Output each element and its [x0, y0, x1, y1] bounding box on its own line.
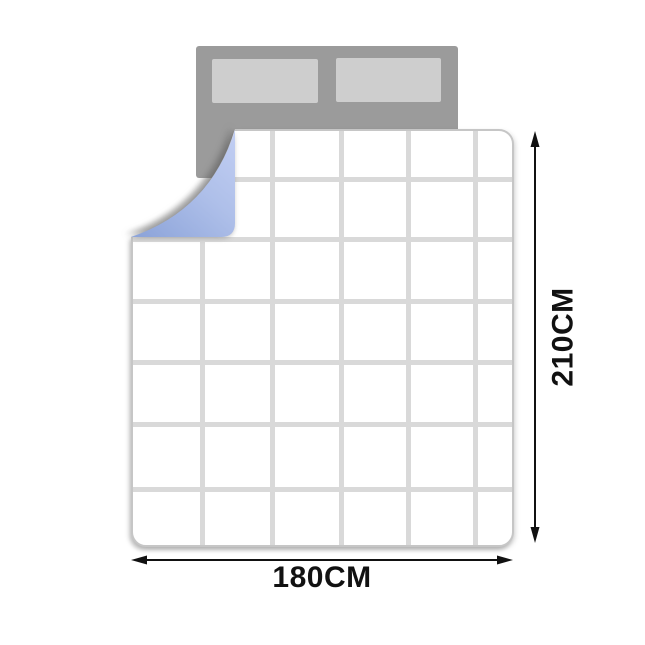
width-dimension-label: 180CM — [129, 561, 515, 595]
folded-corner-shape — [131, 130, 235, 237]
quilt-seam-horizontal — [133, 299, 512, 304]
arrowhead-down-icon — [531, 527, 540, 543]
quilt-seam-vertical — [270, 131, 275, 545]
duvet-dimension-diagram: 210CM 180CM — [0, 0, 645, 645]
quilt-seam-horizontal — [133, 360, 512, 365]
arrowhead-up-icon — [531, 131, 540, 147]
quilt-seam-vertical — [339, 131, 344, 545]
height-dimension-label: 210CM — [541, 129, 587, 545]
quilt-seam-horizontal — [133, 422, 512, 427]
folded-corner — [120, 120, 245, 247]
quilt-seam-vertical — [406, 131, 411, 545]
pillow-right — [336, 58, 441, 102]
quilt-seam-horizontal — [133, 487, 512, 492]
quilt-seam-vertical — [473, 131, 478, 545]
pillow-left — [212, 59, 318, 103]
